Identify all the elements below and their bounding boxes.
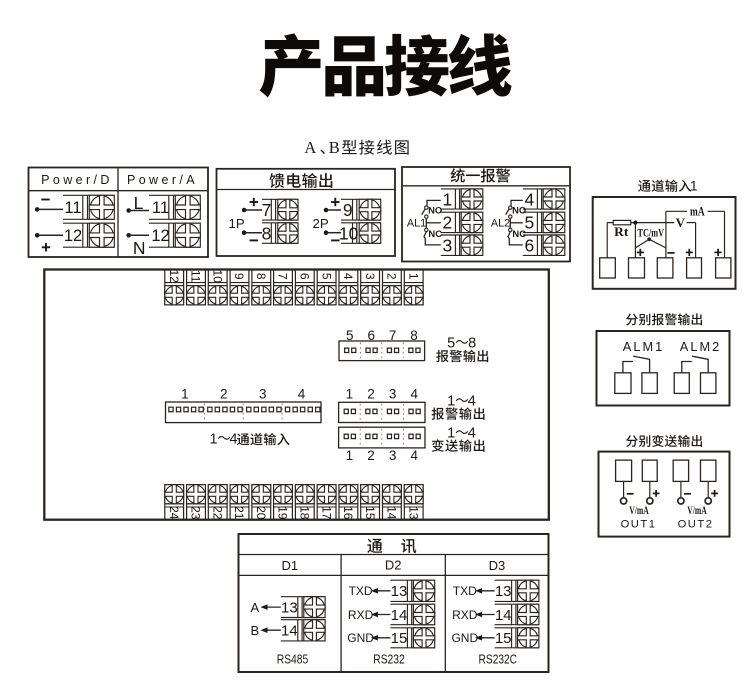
svg-text:3: 3 [389,387,397,402]
svg-text:1P: 1P [229,216,245,231]
svg-text:21: 21 [232,506,246,520]
svg-text:13: 13 [281,600,298,617]
svg-text:A: A [250,600,259,615]
svg-text:4: 4 [410,448,418,463]
svg-text:1: 1 [346,387,354,402]
svg-text:20: 20 [254,506,268,520]
svg-text:14: 14 [495,607,512,624]
svg-text:NC: NC [512,228,526,239]
svg-text:14: 14 [281,623,298,640]
svg-text:1: 1 [346,448,354,463]
svg-text:11: 11 [64,199,81,217]
svg-text:23: 23 [189,506,203,520]
svg-text:RXD: RXD [348,608,374,622]
svg-text:3: 3 [389,448,397,463]
svg-text:V/mA: V/mA [629,505,649,517]
svg-text:11: 11 [189,270,203,283]
svg-text:5: 5 [525,213,535,233]
svg-text:18: 18 [298,506,312,520]
svg-text:NC: NC [428,228,442,239]
svg-text:N: N [133,238,146,258]
svg-text:12: 12 [151,227,169,245]
svg-text:AL2: AL2 [491,218,510,230]
svg-text:4: 4 [341,273,355,280]
svg-text:V/mA: V/mA [687,505,707,517]
svg-text:4: 4 [468,426,476,442]
svg-text:1: 1 [447,426,455,442]
svg-text:15: 15 [495,630,512,647]
svg-text:2P: 2P [313,216,329,231]
svg-text:1: 1 [447,394,455,410]
svg-text:AL1: AL1 [407,218,426,230]
svg-text:GND: GND [347,631,374,645]
svg-text:OUT1: OUT1 [621,519,657,531]
svg-text:3: 3 [363,273,377,280]
svg-text:2: 2 [220,387,228,402]
svg-text:RS232C: RS232C [479,651,518,666]
svg-text:6: 6 [525,236,535,256]
svg-text:14: 14 [385,506,399,520]
svg-text:16: 16 [341,506,355,520]
svg-text:OUT2: OUT2 [678,519,714,531]
svg-text:11: 11 [152,199,169,217]
svg-text:1: 1 [443,189,453,209]
svg-text:1: 1 [210,431,218,447]
svg-text:D1: D1 [281,558,298,573]
svg-text:8: 8 [254,273,268,280]
svg-text:9: 9 [343,200,353,220]
svg-text:TXD: TXD [453,584,477,598]
svg-text:15: 15 [363,506,377,520]
svg-text:4: 4 [468,394,476,410]
svg-text:B: B [250,623,259,638]
svg-text:Rt: Rt [614,225,629,239]
svg-text:2: 2 [443,213,453,233]
svg-text:15: 15 [391,630,408,647]
svg-text:4: 4 [230,431,238,447]
svg-text:2: 2 [385,273,399,280]
svg-text:5: 5 [447,335,455,351]
svg-text:8: 8 [468,335,476,351]
svg-text:10: 10 [210,270,224,284]
svg-text:D2: D2 [385,558,402,573]
svg-text:GND: GND [451,631,478,645]
svg-text:RXD: RXD [452,608,478,622]
svg-text:NO: NO [512,205,526,216]
svg-text:22: 22 [210,506,224,520]
svg-text:12: 12 [167,270,181,284]
svg-text:8: 8 [262,223,272,243]
svg-text:13: 13 [406,506,420,520]
svg-text:1: 1 [406,273,420,280]
svg-text:2: 2 [367,448,375,463]
svg-text:3: 3 [259,387,267,402]
svg-text:5: 5 [319,273,333,280]
svg-text:B: B [329,138,340,157]
svg-text:10: 10 [339,223,359,243]
svg-text:NO: NO [428,205,442,216]
svg-text:1: 1 [690,179,698,194]
svg-text:TXD: TXD [349,584,373,598]
svg-text:D3: D3 [489,558,506,573]
svg-text:2: 2 [367,387,375,402]
svg-text:TC/mV: TC/mV [638,226,665,240]
svg-text:7: 7 [276,273,290,280]
svg-text:RS485: RS485 [277,651,309,666]
svg-text:13: 13 [495,583,512,600]
svg-text:9: 9 [232,273,246,280]
svg-text:24: 24 [167,506,181,520]
svg-text:mA: mA [690,204,705,218]
svg-text:12: 12 [64,227,82,245]
svg-text:17: 17 [319,506,333,520]
svg-text:ALM2: ALM2 [680,339,721,354]
svg-text:4: 4 [410,387,418,402]
svg-text:13: 13 [391,583,408,600]
svg-text:Power/D: Power/D [41,173,113,187]
svg-text:V: V [676,215,686,230]
svg-text:Power/A: Power/A [127,173,198,187]
svg-text:14: 14 [391,607,408,624]
svg-text:6: 6 [298,273,312,280]
svg-text:3: 3 [443,236,453,256]
svg-text:19: 19 [276,506,290,520]
svg-text:RS232: RS232 [373,651,405,666]
svg-text:L: L [134,193,144,213]
svg-text:1: 1 [181,387,189,402]
svg-text:7: 7 [262,200,272,220]
svg-text:4: 4 [298,387,306,402]
svg-text:ALM1: ALM1 [623,339,664,354]
svg-text:A: A [304,138,316,157]
